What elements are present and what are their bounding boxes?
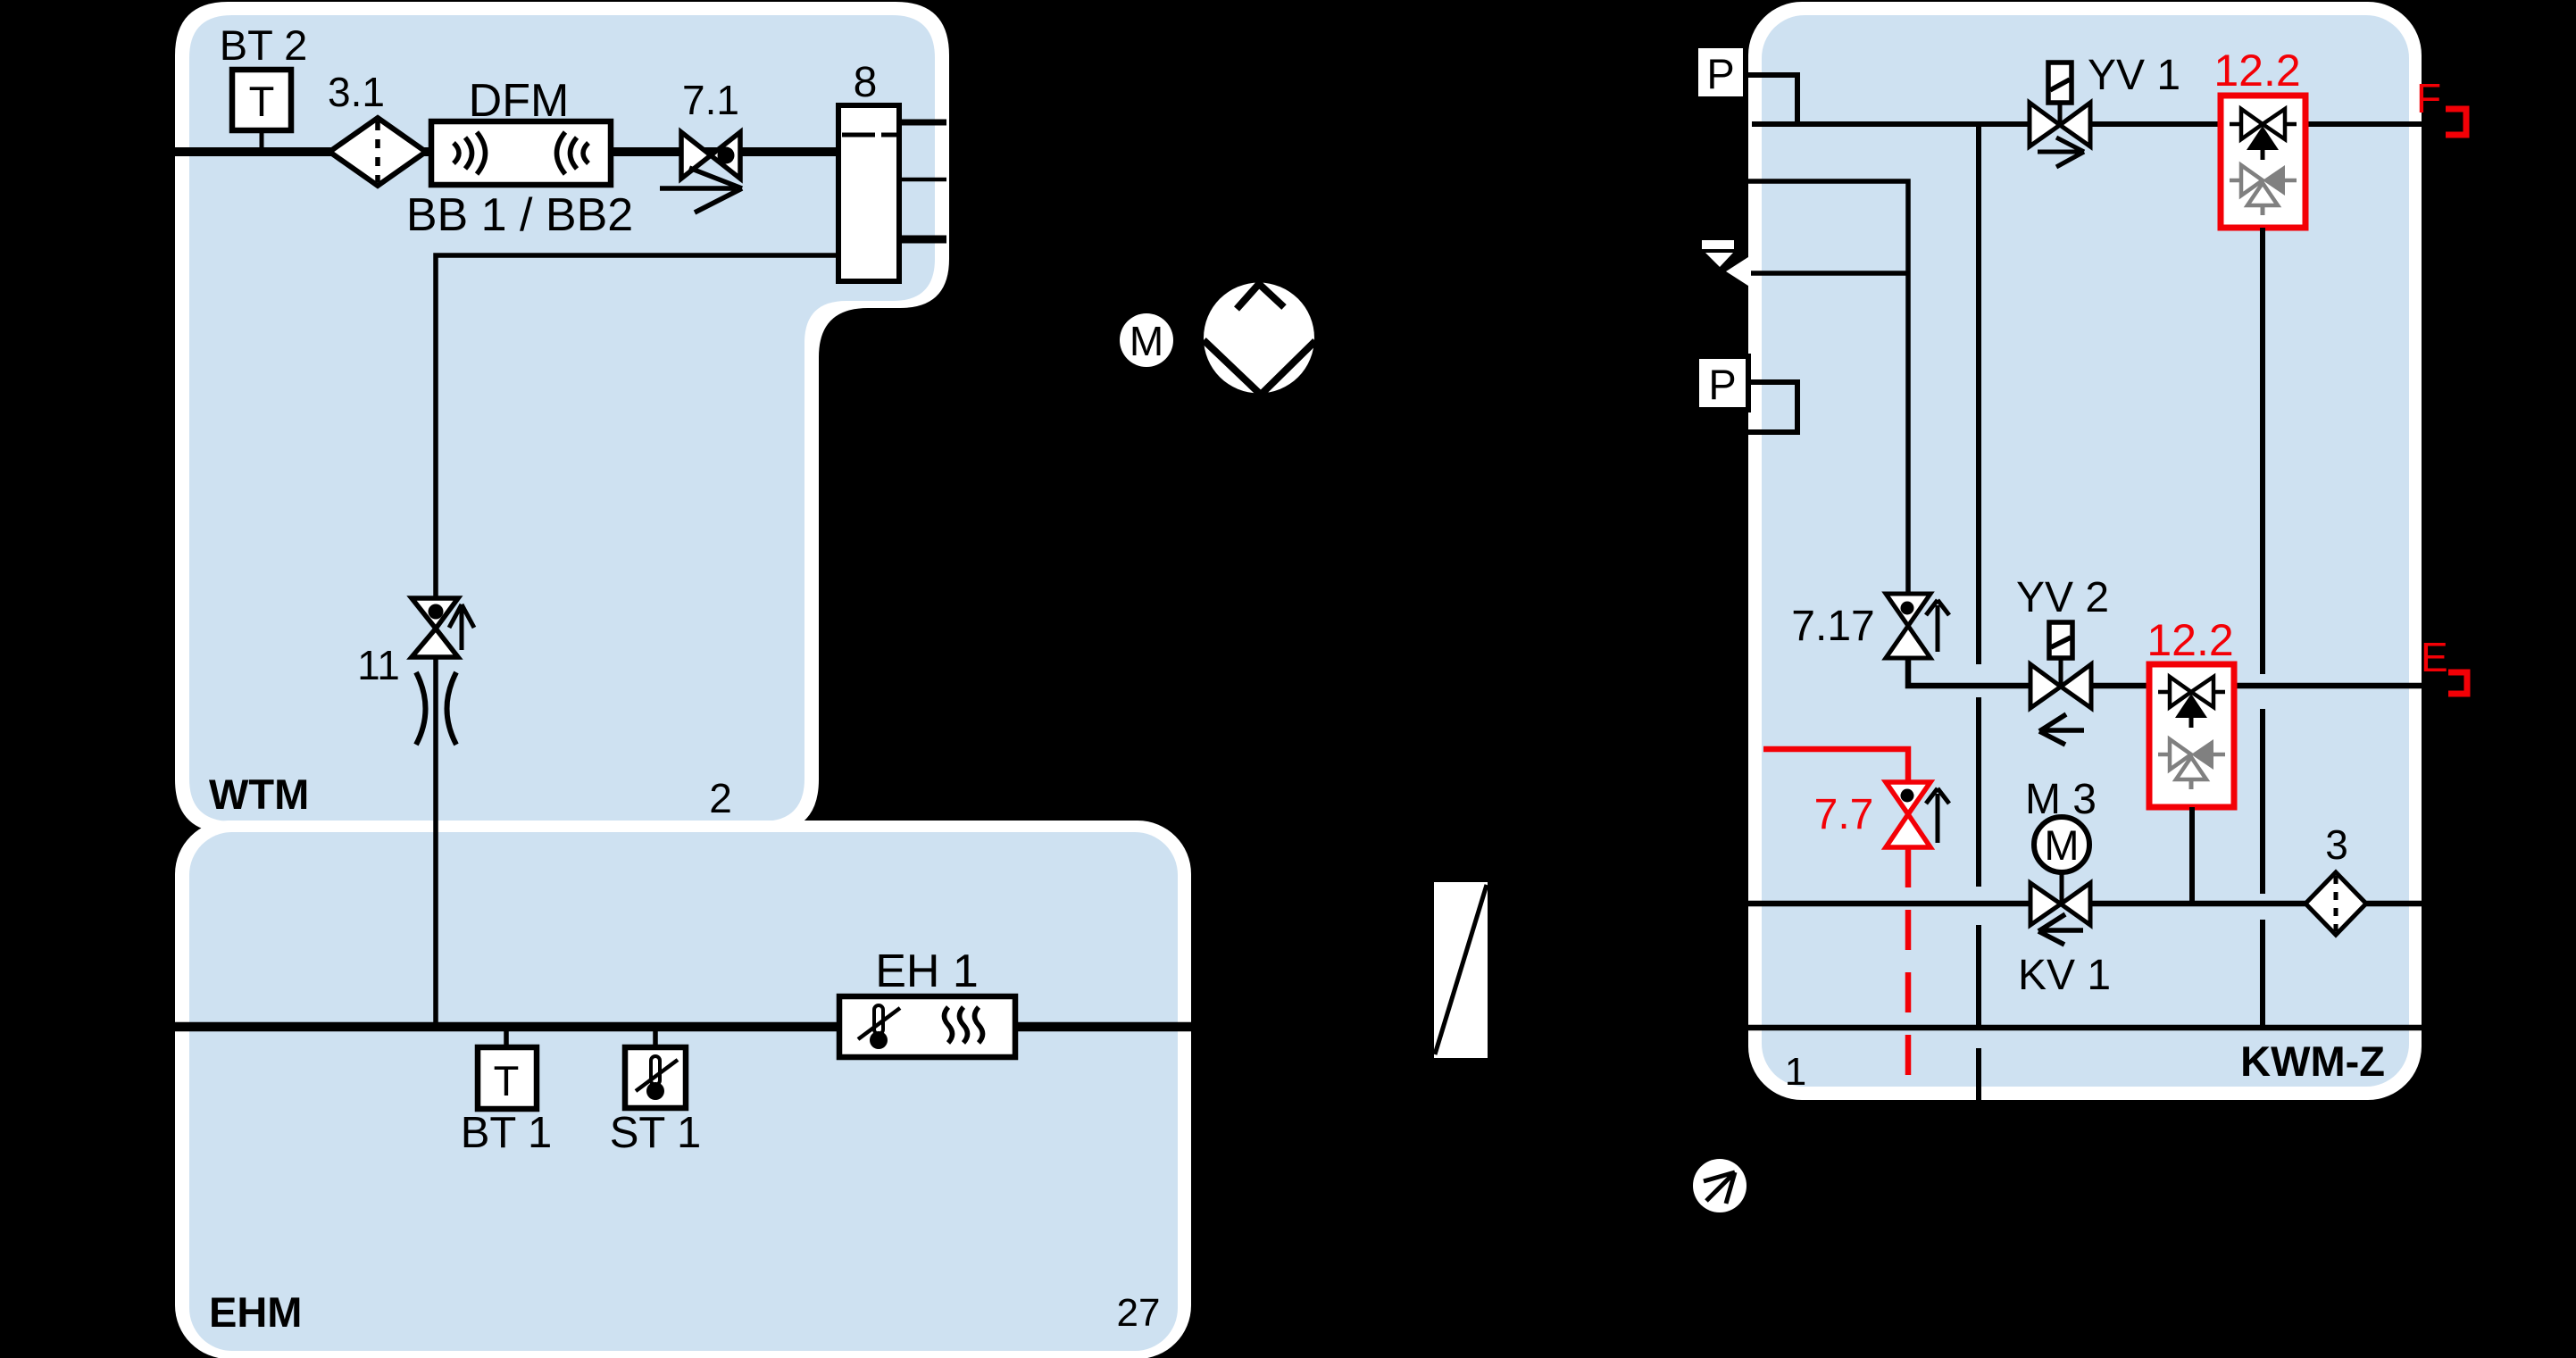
svg-text:12.2: 12.2	[2147, 615, 2233, 665]
svg-text:P: P	[1706, 50, 1734, 97]
svg-text:ST 1: ST 1	[610, 1109, 702, 1157]
svg-text:BB 1 / BB2: BB 1 / BB2	[406, 189, 633, 241]
svg-text:EH 1: EH 1	[875, 946, 979, 997]
svg-text:M: M	[1130, 318, 1163, 364]
svg-text:EHM: EHM	[209, 1288, 302, 1336]
svg-text:KWM-Z: KWM-Z	[2240, 1037, 2385, 1085]
svg-text:7.17: 7.17	[1791, 603, 1874, 650]
svg-text:3: 3	[2325, 821, 2348, 868]
svg-text:DFM: DFM	[469, 75, 570, 127]
svg-text:11: 11	[357, 642, 400, 688]
svg-text:27: 27	[1117, 1291, 1161, 1335]
svg-text:7.7: 7.7	[1814, 791, 1874, 838]
svg-text:8: 8	[854, 59, 878, 106]
svg-text:WTM: WTM	[209, 771, 309, 818]
svg-text:BT 1: BT 1	[461, 1109, 553, 1157]
svg-text:3.1: 3.1	[328, 69, 385, 115]
svg-text:BT 2: BT 2	[220, 21, 307, 69]
svg-text:KV 1: KV 1	[2018, 952, 2111, 999]
svg-text:YV 1: YV 1	[2088, 52, 2180, 99]
svg-text:12.2: 12.2	[2213, 46, 2300, 96]
svg-text:E: E	[2421, 634, 2448, 680]
svg-text:P: P	[1708, 361, 1736, 408]
svg-text:M: M	[2044, 821, 2079, 869]
svg-text:1: 1	[1785, 1050, 1806, 1094]
svg-text:T: T	[494, 1057, 520, 1104]
svg-text:7.1: 7.1	[682, 77, 739, 123]
svg-text:YV 2: YV 2	[2016, 574, 2109, 621]
svg-text:T: T	[249, 78, 275, 125]
svg-text:2: 2	[709, 775, 732, 821]
svg-text:F: F	[2416, 75, 2441, 121]
